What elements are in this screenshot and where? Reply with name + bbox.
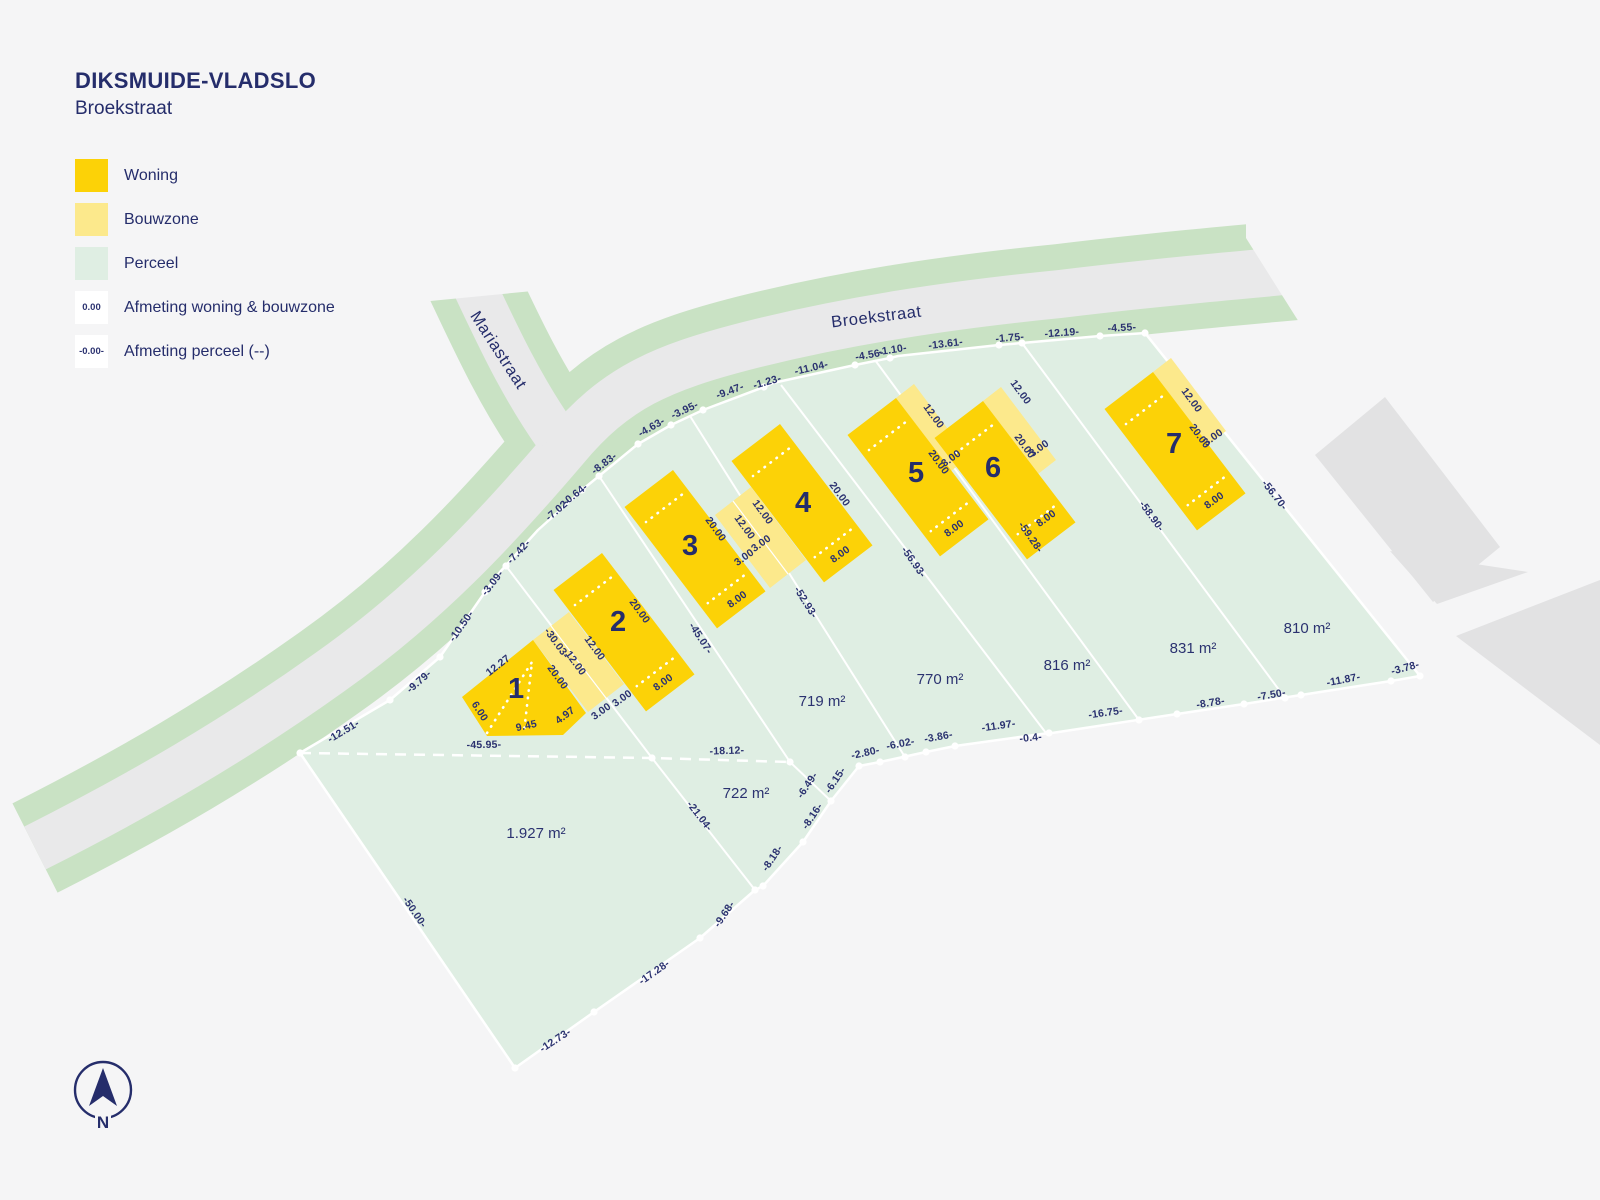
parcel-area-label: 816 m² [1044,657,1091,674]
boundary-dot [922,748,929,755]
boundary-dot [901,753,908,760]
lot-number-label: 7 [1166,428,1182,460]
parcel-area-label: 810 m² [1284,620,1331,637]
north-arrow-icon [89,1068,117,1106]
parcel-dimension-label: -4.55- [1107,321,1137,334]
boundary-dot [751,886,758,893]
parcel-dimension-label: -1.75- [995,331,1025,345]
boundary-dot [1135,716,1142,723]
boundary-dot [876,758,883,765]
parcel-area-label: 719 m² [799,693,846,710]
north-arrow: N [63,1048,143,1143]
lot-number-label: 4 [795,487,811,519]
boundary-dot [1173,710,1180,717]
dimension-sample-icon: -0.00- [75,335,108,368]
legend-item-perceel: Perceel [75,247,335,280]
road-end-cut [1246,200,1480,370]
boundary-dot [1387,677,1394,684]
boundary-dot [799,838,806,845]
boundary-dot [667,421,674,428]
boundary-dot [1141,329,1148,336]
boundary-dot [699,406,706,413]
parcel-area-label: 770 m² [917,671,964,688]
boundary-dot [436,653,443,660]
subdivision-plan-page: -12.51--9.79--10.50--3.09--7.42--7.02--0… [0,0,1600,1200]
parcel-dimension-label: -18.12- [709,744,744,757]
legend-label: Bouwzone [124,211,199,229]
lot-number-label: 2 [610,606,626,638]
boundary-dot [634,440,641,447]
parcel-dimension-label: -0.4- [1019,731,1043,745]
boundary-dot [590,1008,597,1015]
boundary-dot [648,754,655,761]
lot-number-label: 6 [985,452,1001,484]
boundary-dot [386,696,393,703]
dimension-sample-icon: 0.00 [75,291,108,324]
legend: Woning Bouwzone Perceel 0.00 Afmeting wo… [75,159,335,379]
page-title: DIKSMUIDE-VLADSLO [75,68,316,94]
north-label: N [97,1113,109,1132]
boundary-dot [1240,700,1247,707]
boundary-dot [759,882,766,889]
legend-item-bouwzone: Bouwzone [75,203,335,236]
boundary-dot [786,758,793,765]
perceel-swatch-icon [75,247,108,280]
boundary-dot [502,562,509,569]
legend-item-afmeting-perceel: -0.00- Afmeting perceel (--) [75,335,335,368]
legend-label: Perceel [124,255,178,273]
boundary-dot [951,742,958,749]
woning-swatch-icon [75,159,108,192]
boundary-dot [696,934,703,941]
parcel-area-label: 722 m² [723,785,770,802]
legend-label: Afmeting perceel (--) [124,343,270,361]
boundary-dot [827,797,834,804]
parcel-area-label: 1.927 m² [506,825,565,842]
legend-label: Woning [124,167,178,185]
boundary-dot [1045,729,1052,736]
parcel-dimension-label: -12.19- [1044,326,1080,340]
existing-buildings [1315,397,1600,745]
legend-item-woning: Woning [75,159,335,192]
parcel-dimension-label: -45.95- [467,739,502,752]
boundary-dot [1416,672,1423,679]
road-end-cut [398,222,548,302]
page-subtitle: Broekstraat [75,98,316,120]
boundary-dot [296,749,303,756]
legend-label: Afmeting woning & bouwzone [124,299,335,317]
parcel-area-label: 831 m² [1170,640,1217,657]
boundary-dot [855,762,862,769]
lot-number-label: 3 [682,530,698,562]
lot-number-label: 1 [508,673,524,705]
bouwzone-swatch-icon [75,203,108,236]
lot-number-label: 5 [908,457,924,489]
existing-building-shape [1456,580,1600,745]
header: DIKSMUIDE-VLADSLO Broekstraat [75,68,316,120]
boundary-dot [1297,691,1304,698]
boundary-dot [1096,332,1103,339]
boundary-dot [511,1064,518,1071]
legend-item-afmeting-woning: 0.00 Afmeting woning & bouwzone [75,291,335,324]
